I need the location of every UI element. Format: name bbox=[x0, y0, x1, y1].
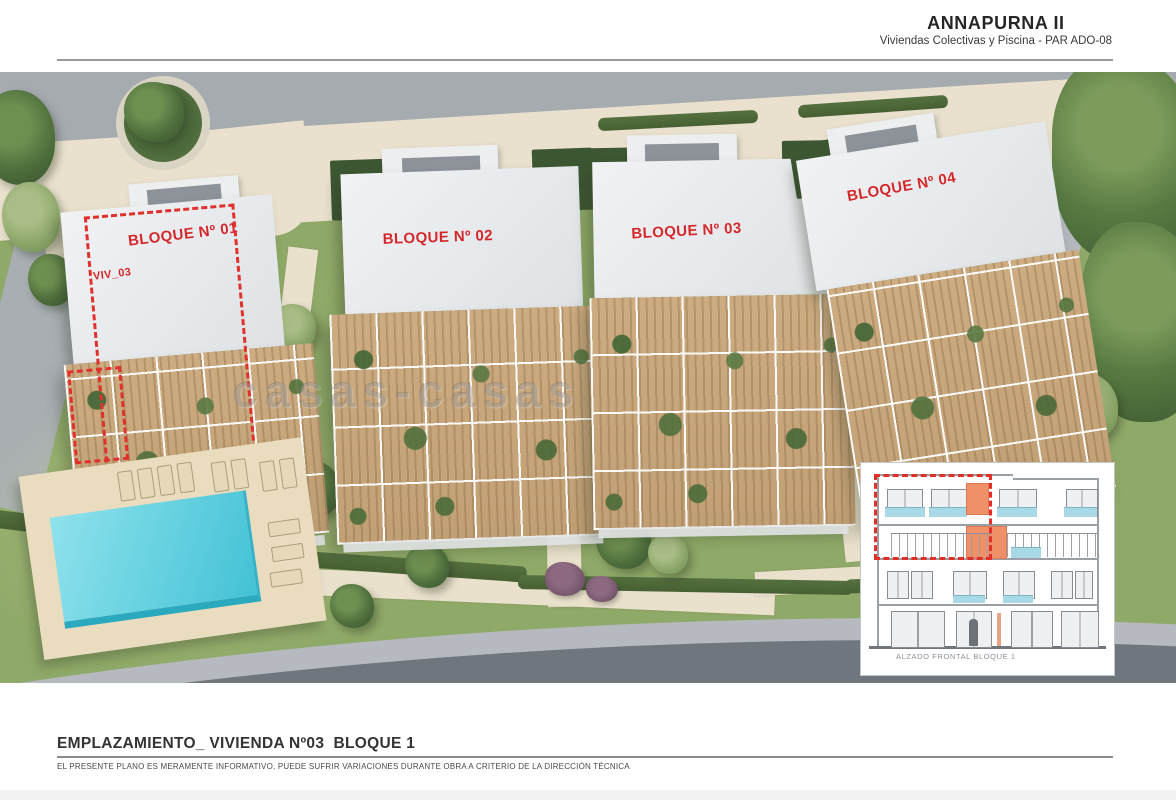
footer-title: EMPLAZAMIENTO_ VIVIENDA Nº03 BLOQUE 1 bbox=[57, 735, 415, 753]
tree bbox=[405, 544, 449, 588]
project-subtitle: Viviendas Colectivas y Piscina - PAR ADO… bbox=[880, 35, 1112, 47]
elevation-caption: ALZADO FRONTAL BLOQUE 1 bbox=[896, 652, 1016, 661]
tree bbox=[124, 82, 184, 142]
elevation-inset: ALZADO FRONTAL BLOQUE 1 bbox=[860, 462, 1115, 676]
storefront-window bbox=[891, 611, 945, 648]
orange-pillar bbox=[997, 613, 1001, 646]
pool-area bbox=[16, 420, 343, 675]
header-divider bbox=[57, 59, 1113, 61]
glass-balustrade bbox=[997, 507, 1037, 517]
flower-shrub bbox=[586, 576, 618, 602]
floor-slab bbox=[877, 604, 1099, 606]
storefront-window bbox=[1011, 611, 1053, 648]
block-2-terraces bbox=[329, 305, 609, 544]
block-3-terraces bbox=[590, 294, 856, 531]
glass-balustrade bbox=[953, 595, 985, 603]
watermark: casas-casas bbox=[232, 364, 580, 418]
footer-disclaimer: EL PRESENTE PLANO ES MERAMENTE INFORMATI… bbox=[57, 762, 630, 771]
parapet-line bbox=[1013, 478, 1099, 480]
window bbox=[887, 571, 909, 599]
glass-balustrade bbox=[1064, 507, 1097, 517]
window bbox=[911, 571, 933, 599]
project-title: ANNAPURNA II bbox=[880, 13, 1112, 34]
window bbox=[1051, 571, 1073, 599]
glass-balustrade bbox=[1003, 595, 1033, 603]
window bbox=[1075, 571, 1093, 599]
glass-balustrade bbox=[1011, 547, 1041, 558]
storefront-window bbox=[1061, 611, 1099, 648]
block-2: BLOQUE Nº 02 bbox=[321, 137, 614, 527]
viv03-elevation-boundary bbox=[874, 474, 992, 560]
tree bbox=[648, 534, 688, 574]
flower-shrub bbox=[545, 562, 585, 596]
person-silhouette bbox=[969, 619, 978, 646]
footer-divider bbox=[57, 756, 1113, 758]
page-edge bbox=[0, 790, 1176, 800]
title-block: ANNAPURNA II Viviendas Colectivas y Pisc… bbox=[880, 13, 1112, 47]
